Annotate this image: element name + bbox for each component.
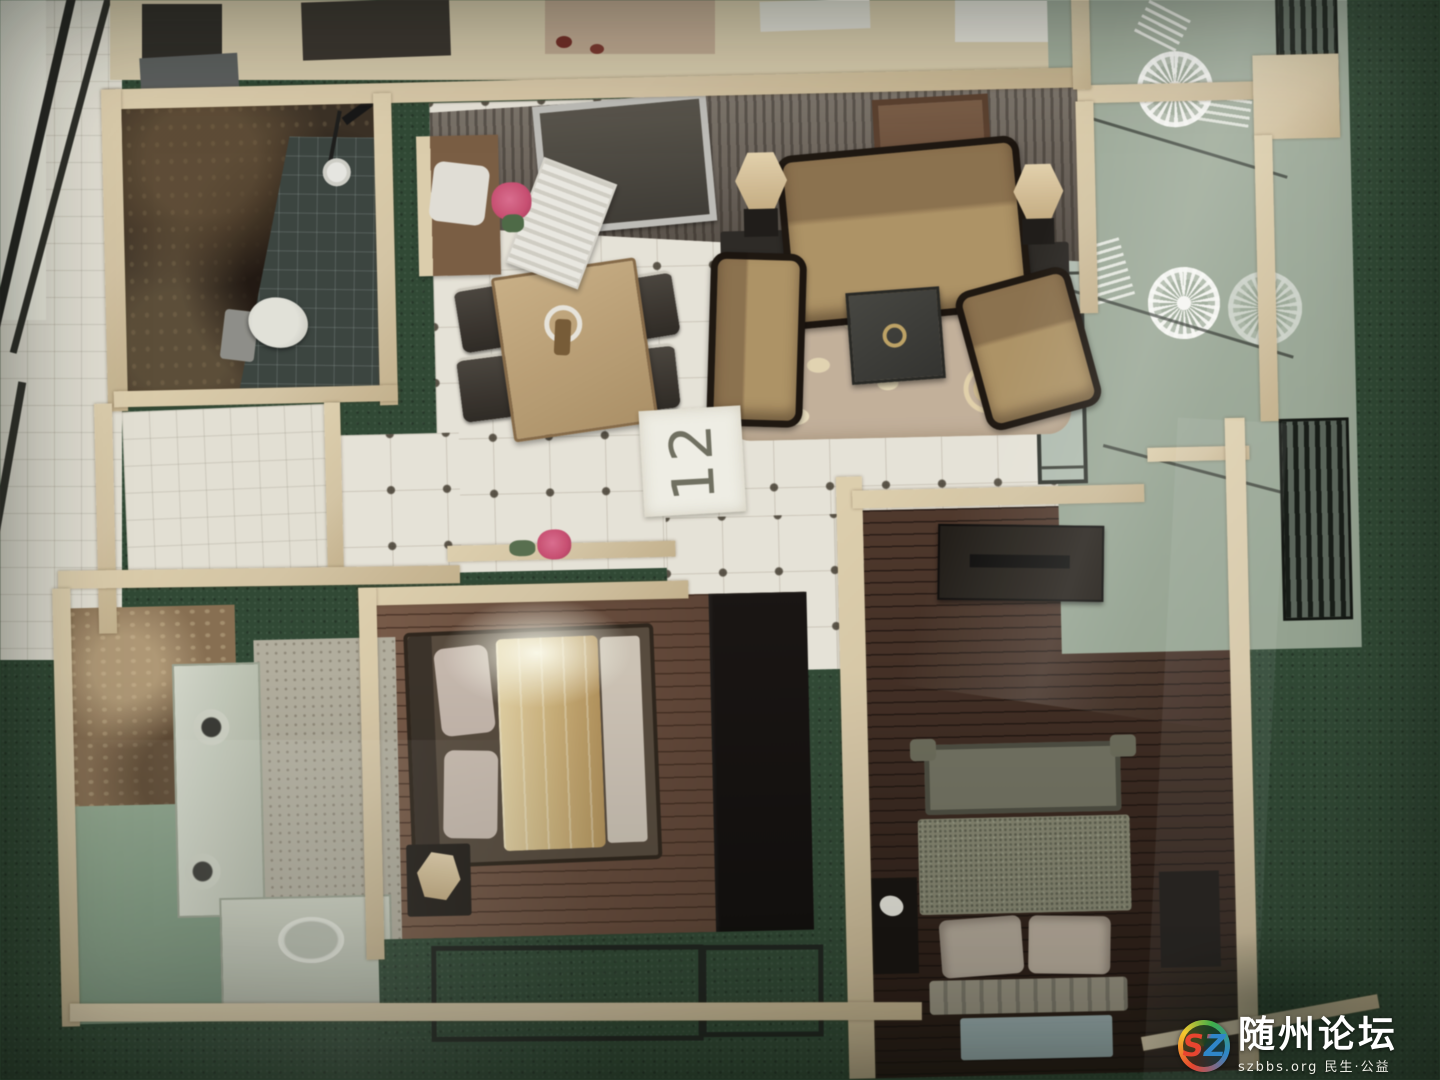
site-name: 随州论坛	[1238, 1014, 1398, 1056]
placard-number: 12	[656, 419, 728, 503]
flower-leaves	[509, 540, 535, 557]
watermark: SZ 随州论坛 szbbs.org 民生·公益	[1178, 1006, 1440, 1080]
armchair-left	[706, 251, 807, 428]
site-logo-icon: SZ	[1178, 1020, 1230, 1072]
balcony-slat-window	[1279, 417, 1354, 621]
photo-content: 12	[0, 0, 1440, 1080]
bed1	[403, 623, 662, 869]
site-subline: szbbs.org 民生·公益	[1238, 1056, 1398, 1075]
bed2-ear	[1110, 734, 1136, 757]
wall	[70, 1002, 922, 1021]
window-frame-flat	[431, 945, 703, 1042]
wall	[94, 403, 117, 633]
tv-cabinet-slot	[970, 554, 1070, 568]
bed1-pillow	[443, 750, 498, 839]
bed2-quilt	[918, 814, 1132, 915]
bed1-sheet	[600, 636, 648, 843]
table-vase	[554, 319, 572, 356]
watermark-text-block: 随州论坛 szbbs.org 民生·公益	[1238, 1006, 1398, 1075]
sideboard-roll	[428, 160, 491, 226]
utility-room-floor	[122, 404, 333, 577]
bed2-pillow	[1028, 915, 1111, 974]
bed2	[894, 732, 1163, 1038]
hallway-floor	[334, 433, 462, 576]
site-tagline: 民生·公益	[1324, 1060, 1390, 1075]
site-url: szbbs.org	[1238, 1060, 1318, 1075]
bed2-top	[924, 741, 1122, 815]
wall	[324, 402, 344, 574]
nightstand2	[1159, 870, 1221, 967]
bed1-pillow	[433, 644, 496, 737]
wall	[1071, 0, 1091, 90]
unit-placard: 12	[638, 405, 746, 517]
table-lamp-base	[1022, 218, 1055, 245]
bed2-pillow	[938, 915, 1024, 979]
nightstand2	[867, 877, 919, 974]
logo-letters: SZ	[1178, 1020, 1230, 1072]
bed2-foot-rug	[960, 1015, 1113, 1060]
flower-pot	[537, 529, 572, 560]
window-frame-flat	[701, 944, 823, 1037]
wall	[1252, 53, 1340, 139]
apartment-unit: 12	[0, 0, 1440, 1080]
model-photo: 12 SZ 随州论坛 szbbs.org 民生·公益	[0, 0, 1440, 1080]
bed1-quilt	[496, 635, 606, 851]
wall	[58, 565, 460, 589]
table-lamp-base	[744, 208, 779, 237]
bed2-headboard	[929, 977, 1128, 1015]
bed2-ear	[910, 739, 936, 762]
flower-leaves	[502, 214, 524, 232]
